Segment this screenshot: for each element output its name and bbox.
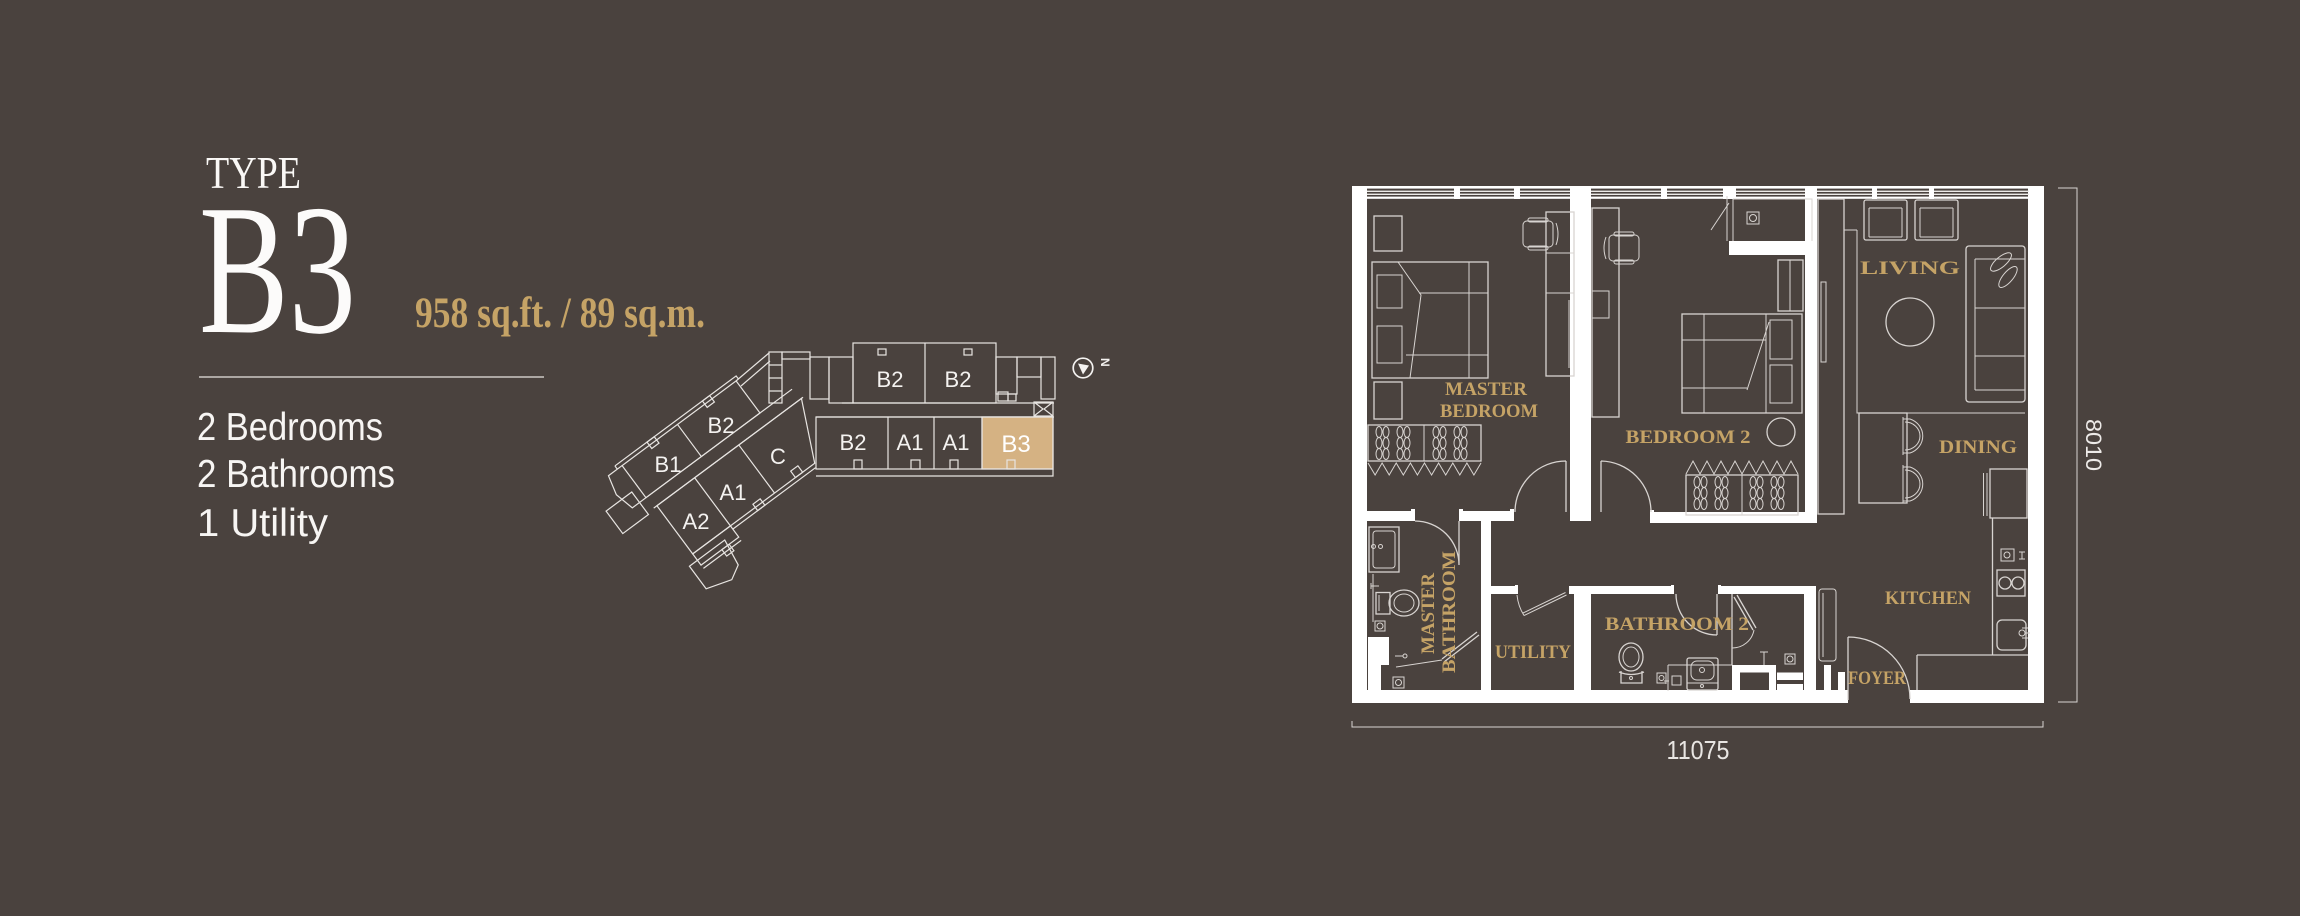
svg-text:11075: 11075	[1667, 735, 1730, 765]
svg-text:MASTER: MASTER	[1418, 573, 1439, 654]
svg-text:2 Bathrooms: 2 Bathrooms	[197, 453, 395, 496]
svg-text:B2: B2	[840, 430, 867, 455]
svg-text:N: N	[1098, 358, 1112, 367]
svg-text:BATHROOM: BATHROOM	[1439, 551, 1460, 673]
svg-text:A1: A1	[720, 480, 747, 505]
svg-text:BATHROOM 2: BATHROOM 2	[1605, 614, 1749, 635]
svg-text:1 Utility: 1 Utility	[197, 502, 329, 545]
svg-text:8010: 8010	[2081, 419, 2106, 471]
svg-text:DINING: DINING	[1939, 437, 2017, 458]
svg-text:KITCHEN: KITCHEN	[1885, 588, 1971, 609]
svg-text:958 sq.ft. / 89 sq.m.: 958 sq.ft. / 89 sq.m.	[415, 290, 705, 337]
svg-text:A2: A2	[683, 509, 710, 534]
svg-text:B3: B3	[199, 167, 356, 373]
svg-text:B2: B2	[877, 367, 904, 392]
svg-text:MASTER: MASTER	[1445, 379, 1527, 400]
svg-text:BEDROOM: BEDROOM	[1440, 401, 1538, 422]
svg-text:B2: B2	[945, 367, 972, 392]
svg-text:LIVING: LIVING	[1860, 258, 1960, 279]
svg-text:B3: B3	[1001, 431, 1030, 458]
svg-text:C: C	[770, 444, 786, 469]
svg-text:A1: A1	[943, 430, 970, 455]
svg-text:2 Bedrooms: 2 Bedrooms	[197, 406, 383, 449]
svg-text:UTILITY: UTILITY	[1495, 642, 1571, 663]
svg-text:FOYER: FOYER	[1848, 668, 1906, 689]
svg-text:A1: A1	[897, 430, 924, 455]
svg-text:B2: B2	[708, 413, 735, 438]
svg-text:B1: B1	[655, 452, 682, 477]
svg-text:BEDROOM 2: BEDROOM 2	[1626, 427, 1751, 448]
